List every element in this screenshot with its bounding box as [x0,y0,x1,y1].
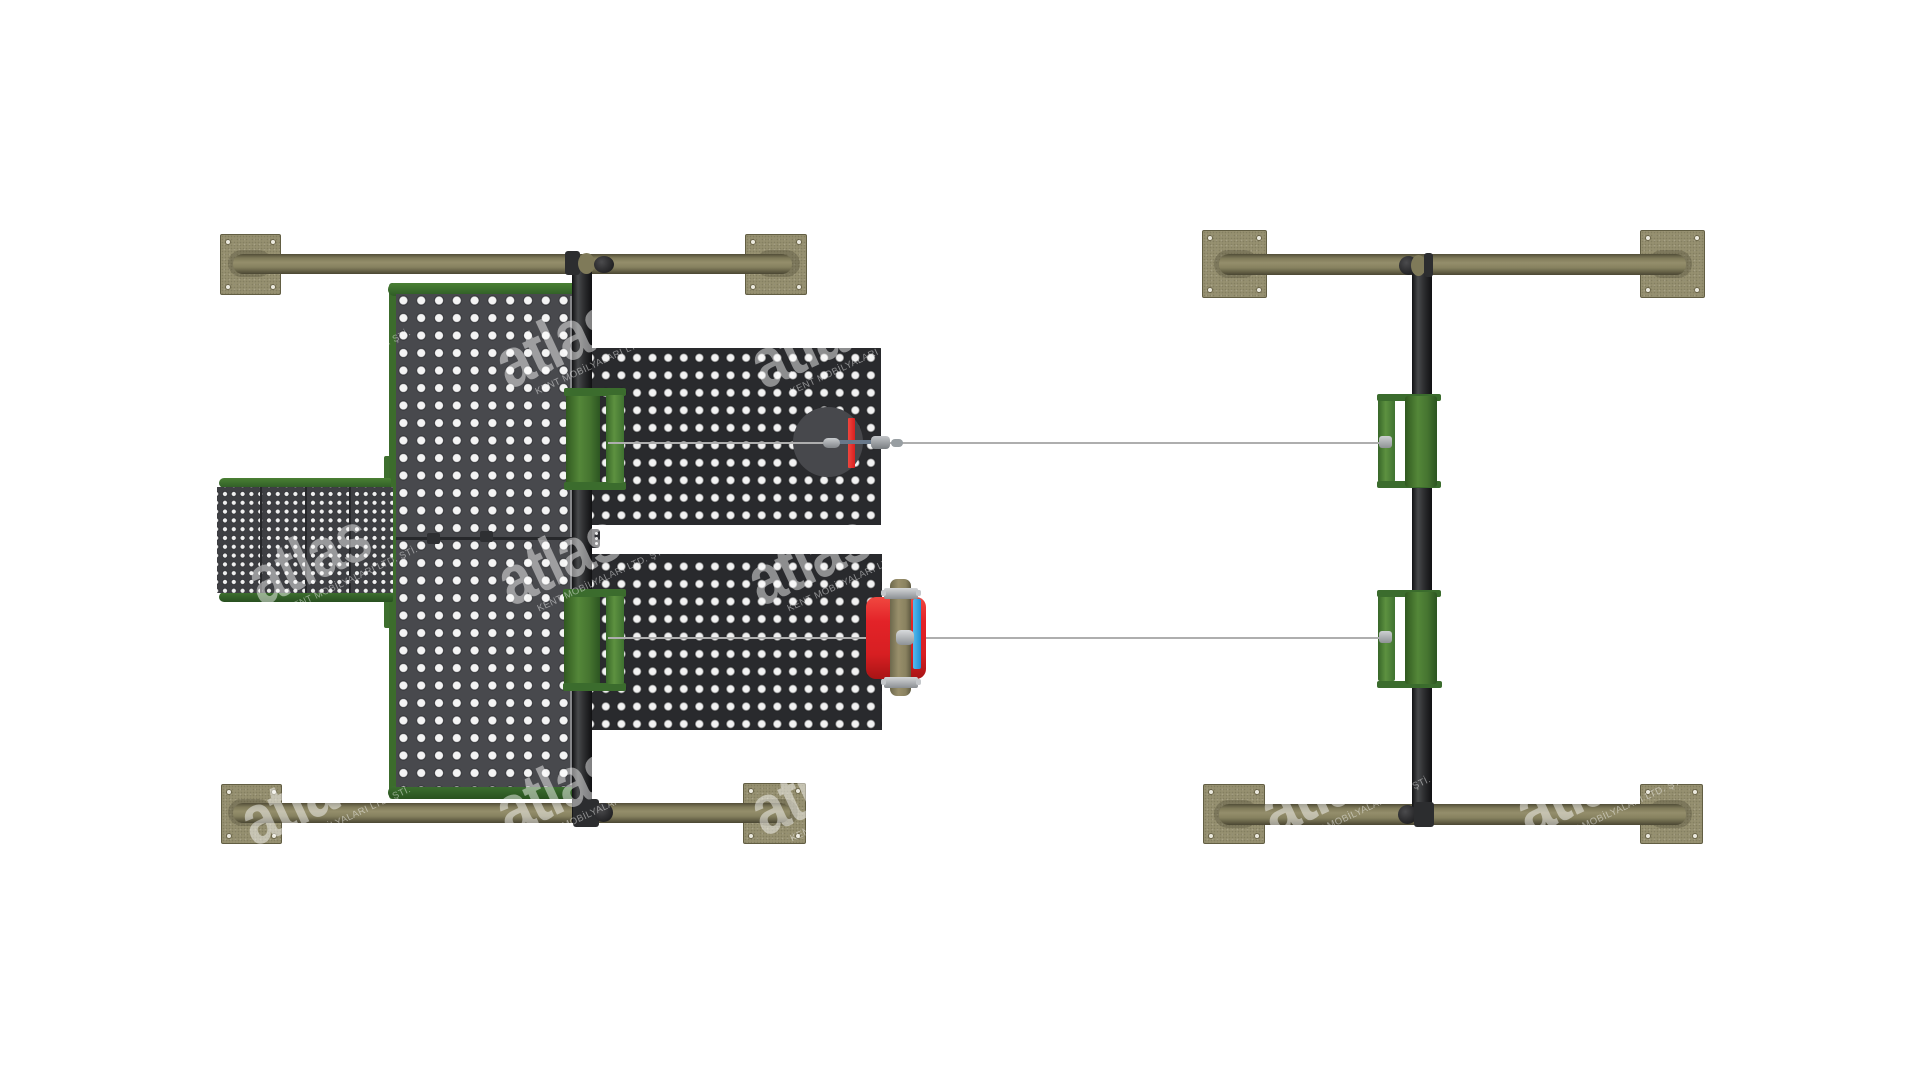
svg-text:atlas: atlas [1247,279,1394,404]
svg-text:atlas: atlas [1247,496,1394,621]
